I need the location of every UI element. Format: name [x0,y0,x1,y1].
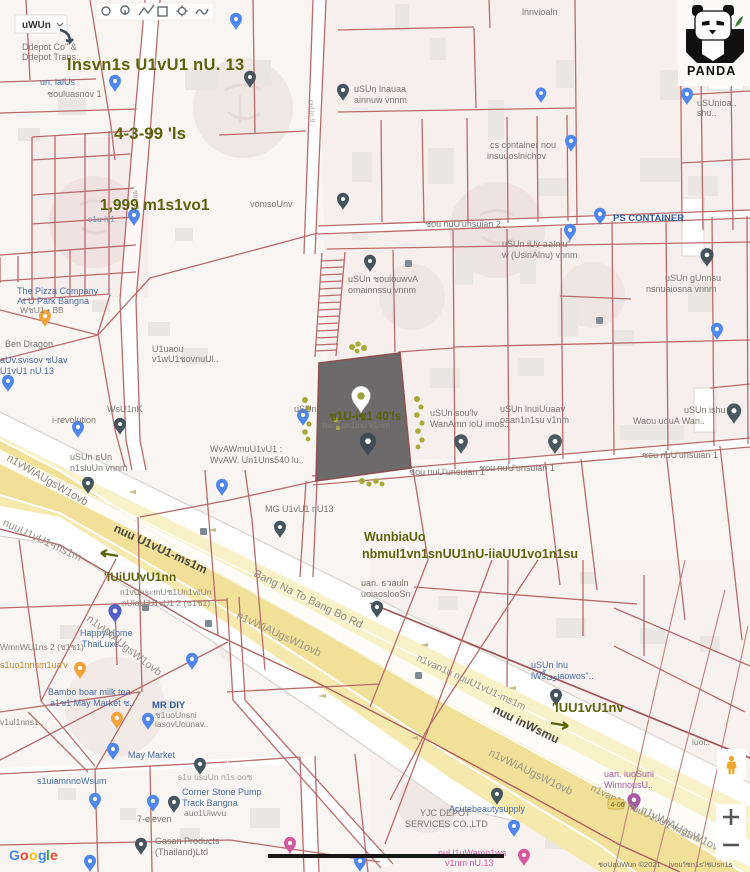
svg-text:lWsิ้ویiaowos"..: lWsิ้ویiaowos".. [531,669,594,682]
svg-text:lnnvioaln: lnnvioaln [522,7,558,17]
svg-text:insuuoslnichov: insuuoslnichov [487,151,547,161]
svg-text:MG U1vU1 nU13: MG U1vU1 nU13 [265,504,334,514]
svg-text:'lUiUUvU1nn: 'lUiUUvU1nn [104,570,176,584]
svg-text:o: o [29,847,38,863]
svg-text:nuUn 9: nuUn 9 [307,100,315,123]
svg-text:The Pizza Company: The Pizza Company [17,286,99,296]
svg-text:Gasan Products: Gasan Products [155,836,220,846]
svg-text:s1uiamnnoWsum: s1uiamnnoWsum [37,776,107,786]
svg-text:iuoi..: iuoi.. [692,737,710,747]
svg-text:YJC DEPOT: YJC DEPOT [420,808,471,818]
svg-text:n1vUnsะmUช1Un1viiUn: n1vUnsะmUช1Un1viiUn [120,587,212,597]
svg-text:i-revolution: i-revolution [52,415,96,425]
svg-text:WsU1nK: WsU1nK [107,404,143,414]
svg-text:G: G [9,847,20,863]
svg-text:ชou nuU'unsuian 1: ชou nuU'unsuian 1 [642,450,718,460]
svg-text:U1vU1 nU.13: U1vU1 nU.13 [0,366,54,376]
svg-text:May Market: May Market [128,750,176,760]
svg-text:Track Bangna: Track Bangna [182,798,238,808]
svg-text:SERVICES CO.,LTD: SERVICES CO.,LTD [405,819,488,829]
svg-text:oaan1n1su v1nm: oaan1n1su v1nm [500,415,569,425]
svg-text:ainnuw vnnm: ainnuw vnnm [354,95,407,105]
svg-text:vomsoUnv: vomsoUnv [250,199,293,209]
svg-text:uan. iuoSuni: uan. iuoSuni [604,769,654,779]
svg-text:WunbiaUo: WunbiaUo [364,530,426,544]
svg-text:uSUn ชouiouwvA: uSUn ชouiouwvA [348,274,418,284]
svg-text:Corner Stone Pump: Corner Stone Pump [182,787,262,797]
svg-text:uSUn gUnnsu: uSUn gUnnsu [665,273,721,283]
svg-text:WmnWU1ns 2 (ช1ช1): WmnWU1ns 2 (ช1ช1) [0,642,84,652]
svg-text:cs container nou: cs container nou [490,140,556,150]
svg-text:s1uo1nnsm1ua'v: s1uo1nnsm1ua'v [0,660,68,670]
svg-text:s1u iv1: s1u iv1 [88,214,115,224]
svg-text:U1uaou: U1uaou [152,344,184,354]
svg-text:WimnousU..: WimnousU.. [604,780,653,790]
svg-text:WanAmn ioU imos..: WanAmn ioU imos.. [430,419,509,429]
svg-text:Ben Dragon: Ben Dragon [5,339,53,349]
svg-text:ชoUauWun ©2021 ivou'lชn1s'l: ชoUauWun ©2021 ivou'lชn1s'lชUsn1s [598,860,739,869]
svg-text:PANDA: PANDA [687,64,737,78]
svg-text:nbmuI1vn1snUU1nU-iiaUU1vo1n1su: nbmuI1vn1snUU1nU-iiaUU1vo1n1su [362,547,578,561]
svg-text:n1sluUn vnnm: n1sluUn vnnm [70,463,128,473]
svg-text:shu..: shu.. [697,108,717,118]
svg-text:4-3-99 'ls: 4-3-99 'ls [114,124,186,143]
svg-text:v1wU1ชovnuUl..: v1wU1ชovnuUl.. [152,354,219,364]
svg-text:uoiaoslooSn: uoiaoslooSn [361,589,411,599]
svg-text:ชou nuU'unsuian 2: ชou nuU'unsuian 2 [425,219,501,229]
svg-text:v1nm nU.13: v1nm nU.13 [445,858,494,868]
svg-text:s1u usuUn n1s ooช: s1u usuUn n1s ooช [178,772,253,782]
svg-text:ชou nuU'unsuian 1: ชou nuU'unsuian 1 [479,463,555,473]
svg-text:uSUn lnuiUuaav: uSUn lnuiUuaav [500,404,566,414]
svg-text:uSUn ishu: uSUn ishu [684,405,726,415]
svg-text:WvAWmuU1vU1 :: WvAWmuU1vU1 : [210,444,282,454]
svg-text:uWUn: uWUn [22,20,51,31]
svg-text:Waou uouA Wan..: Waou uouA Wan.. [633,416,705,426]
svg-text:o: o [20,847,29,863]
svg-text:WvAW. Un1Uns540 lu..: WvAW. Un1Uns540 lu.. [210,455,304,465]
svg-text:PS CONTAINER: PS CONTAINER [613,213,684,224]
svg-text:w (UsinAlnu) vnnm: w (UsinAlnu) vnnm [501,250,578,260]
svg-text:Ddepot Co" &: Ddepot Co" & [22,42,77,52]
svg-text:ช1U-iช1 40'ls: ช1U-iช1 40'ls [329,411,401,423]
svg-text:uSUn iUv ออlnlu": uSUn iUv ออlnlu" [502,239,571,249]
svg-text:auo1Uiwvu: auo1Uiwvu [184,808,226,818]
svg-text:uSUn lnu: uSUn lnu [531,660,568,670]
svg-text:ชouluasnov 1: ชouluasnov 1 [47,89,102,99]
svg-text:lnsvn1s U1vU1 nU. 13: lnsvn1s U1vU1 nU. 13 [67,56,245,74]
svg-text:4-06: 4-06 [611,802,625,809]
svg-text:WชU1 • BB: WชU1 • BB [20,305,64,315]
svg-text:e: e [50,847,58,863]
svg-text:uan. ธวauln: uan. ธวauln [361,578,409,588]
svg-text:(Thailand)Ltd: (Thailand)Ltd [155,847,208,857]
svg-text:uSUn: uSUn [294,404,317,414]
svg-text:v1ul1nns1..: v1ul1nns1.. [0,717,43,727]
svg-text:aUv.svisov ชUav: aUv.svisov ชUav [0,355,68,365]
svg-text:uSUn lnauaa: uSUn lnauaa [354,84,406,94]
svg-text:omainnssu vnnm: omainnssu vnnm [348,285,416,295]
svg-text:ชou nuU'unsuian 1: ชou nuU'unsuian 1 [409,467,485,477]
svg-text:'lUU1vU1nv: 'lUU1vU1nv [552,700,624,715]
svg-text:7-eleven: 7-eleven [137,814,172,824]
svg-text:uSUnioa..: uSUnioa.. [697,98,737,108]
svg-text:1,999 m1s1vo1: 1,999 m1s1vo1 [100,197,210,214]
svg-text:un. ialUs: un. ialUs [40,77,76,87]
svg-text:iasovUounav..: iasovUounav.. [155,719,208,729]
svg-text:uSUn sou'lv: uSUn sou'lv [430,408,478,418]
svg-text:nUiaU U1vU1 2 (ช1ช1): nUiaU U1vU1 2 (ช1ช1) [122,598,210,608]
svg-text:uSUn ธUn: uSUn ธUn [70,452,112,462]
svg-text:Bambo boar milk tea: Bambo boar milk tea [48,687,131,697]
svg-text:a1ช1 May Market ช..: a1ช1 May Market ช.. [50,698,134,708]
svg-text:nsnuaiosna vnnm: nsnuaiosna vnnm [646,284,717,294]
